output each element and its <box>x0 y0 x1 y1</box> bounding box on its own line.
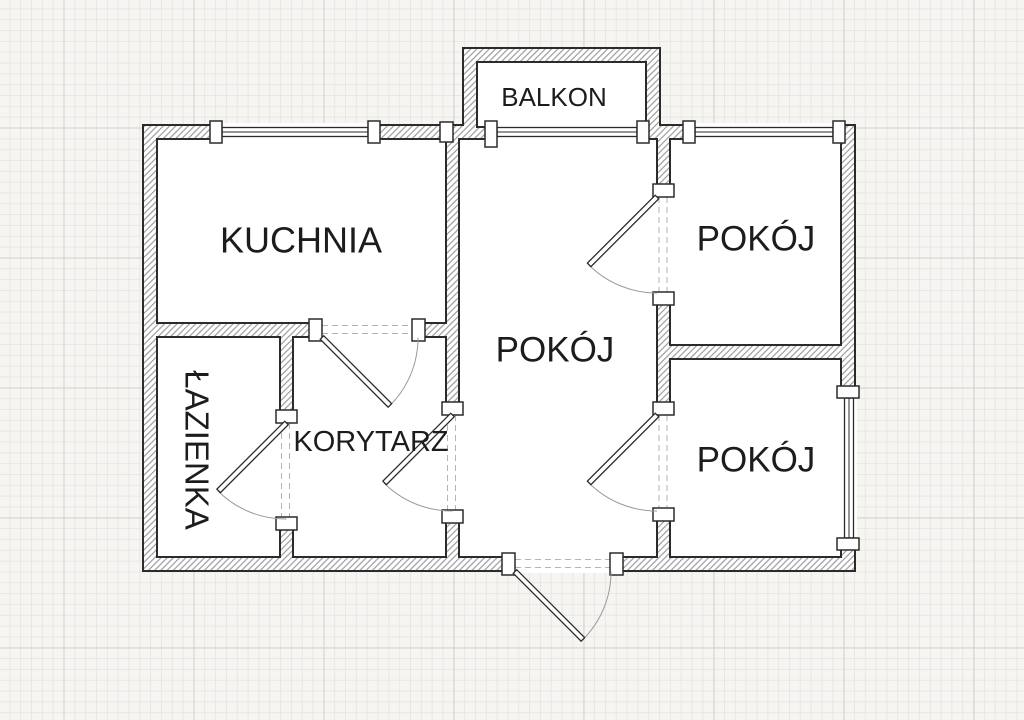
door-jamb <box>653 402 674 415</box>
door-jamb <box>276 410 297 423</box>
opening-kitchen-door <box>322 321 412 340</box>
opening-room-top-right-door <box>655 197 673 292</box>
window-jamb <box>833 121 845 143</box>
floorplan-svg: KUCHNIA ŁAZIENKA KORYTARZ POKÓJ POKÓJ PO… <box>0 0 1024 720</box>
label-pokoj-bottom-right: POKÓJ <box>697 441 816 480</box>
floorplan-canvas: KUCHNIA ŁAZIENKA KORYTARZ POKÓJ POKÓJ PO… <box>0 0 1024 720</box>
door-jamb <box>610 553 623 575</box>
door-leaf <box>513 570 584 641</box>
wall-junction-block <box>440 122 453 142</box>
opening-entrance-door <box>515 555 610 573</box>
label-pokoj-center: POKÓJ <box>496 331 615 370</box>
door-jamb <box>309 319 322 341</box>
door-jamb <box>653 292 674 305</box>
opening-room-bottom-right-door <box>655 415 673 508</box>
door-jamb <box>442 402 463 415</box>
door-jamb <box>653 184 674 197</box>
label-korytarz: KORYTARZ <box>293 426 448 458</box>
door-jamb <box>653 508 674 521</box>
label-balkon: BALKON <box>501 82 607 112</box>
door-jamb <box>442 510 463 523</box>
window-jamb <box>368 121 380 143</box>
door-swing-arc <box>583 572 611 640</box>
window-jamb <box>837 538 859 550</box>
window-jamb <box>210 121 222 143</box>
window-jamb <box>837 386 859 398</box>
window-jamb <box>683 121 695 143</box>
window-jamb <box>637 121 649 143</box>
window-jamb <box>485 121 497 147</box>
label-lazienka: ŁAZIENKA <box>179 370 216 530</box>
door-jamb <box>502 553 515 575</box>
label-pokoj-top-right: POKÓJ <box>697 220 816 259</box>
label-kuchnia: KUCHNIA <box>220 220 382 261</box>
